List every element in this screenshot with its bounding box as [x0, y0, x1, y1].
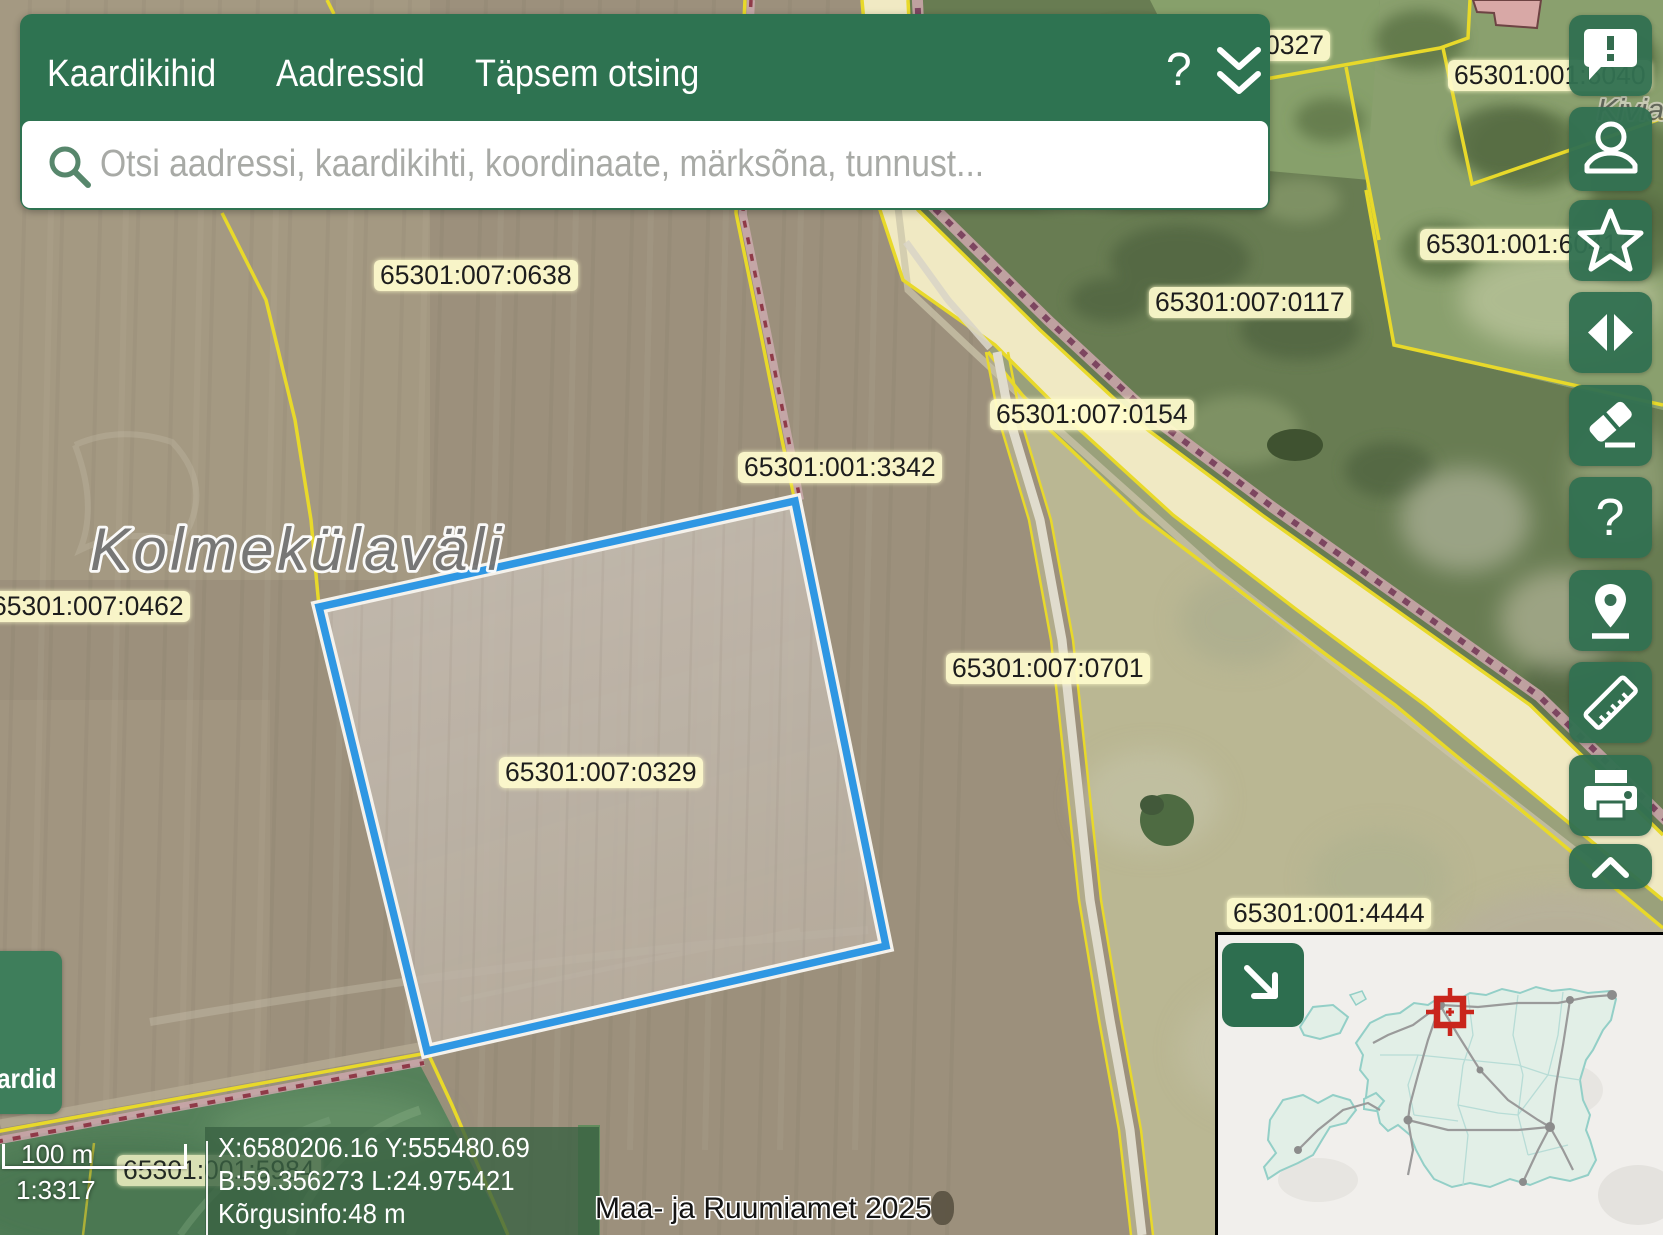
svg-text:?: ?	[1596, 489, 1625, 547]
svg-text:Kolmekülaväli: Kolmekülaväli	[90, 516, 504, 583]
